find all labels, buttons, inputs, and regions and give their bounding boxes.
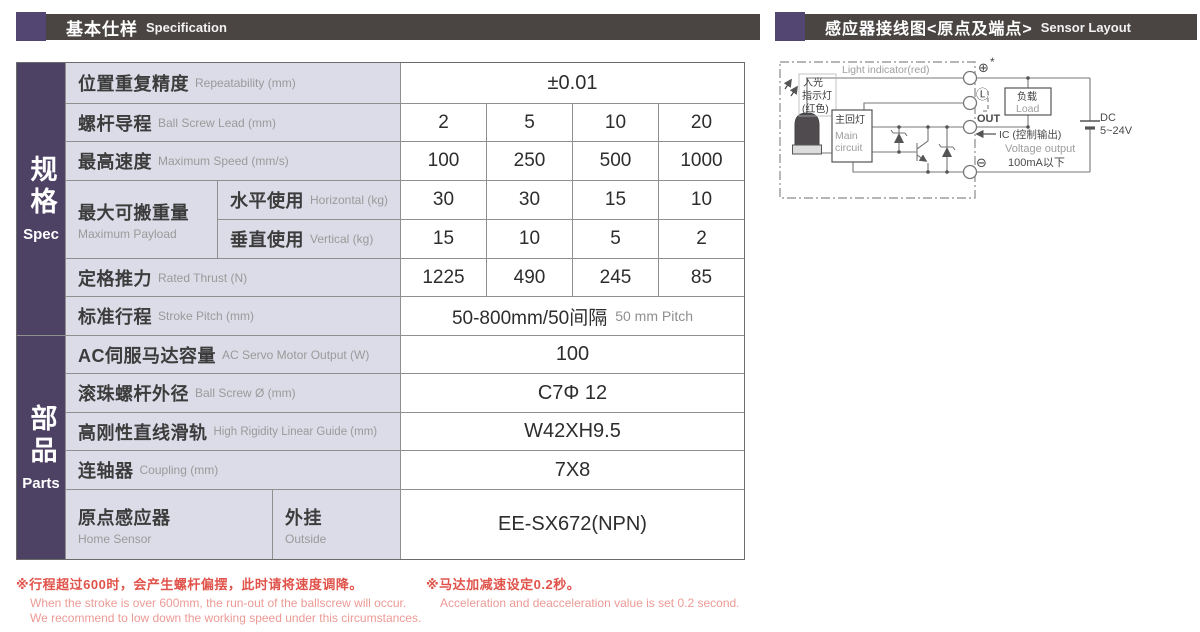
value-cells: 30 30 15 10 xyxy=(401,181,744,219)
row-label-en: Horizontal (kg) xyxy=(310,193,388,207)
section-label-parts: 部品 Parts xyxy=(17,336,65,559)
section-column: 规格 Spec 部品 Parts xyxy=(17,63,66,559)
stroke-pitch-value-zh: 50-800mm/50间隔 xyxy=(452,303,607,330)
footnote-accel: ※马达加减速设定0.2秒。 Acceleration and deacceler… xyxy=(426,574,740,610)
row-label-mount: 外挂 Outside xyxy=(273,490,401,559)
row-label-zh: 螺杆导程 xyxy=(78,110,152,136)
row-label-zh: 标准行程 xyxy=(78,303,152,329)
row-label-en: Outside xyxy=(285,532,326,546)
terminal-minus-circle xyxy=(964,166,977,179)
row-label-en: Coupling (mm) xyxy=(140,463,219,477)
value-cell: 1000 xyxy=(659,142,744,180)
table-row-max-payload: 最大可搬重量 Maximum Payload 水平使用 Horizontal (… xyxy=(66,181,744,259)
table-row-stroke-pitch: 标准行程 Stroke Pitch (mm) 50-800mm/50间隔 50 … xyxy=(66,297,744,336)
load-box: 负载 Load xyxy=(1005,88,1051,115)
row-label: 标准行程 Stroke Pitch (mm) xyxy=(66,297,401,335)
main-circuit-en2: circuit xyxy=(835,142,863,154)
load-label-en: Load xyxy=(1016,103,1040,115)
footnote-stroke-zh: ※行程超过600时，会产生螺杆偏摆，此时请将速度调降。 xyxy=(16,574,421,593)
value-cell: ±0.01 xyxy=(401,63,744,103)
footnote-stroke-en1: When the stroke is over 600mm, the run-o… xyxy=(30,596,421,610)
row-label-zh: 高刚性直线滑轨 xyxy=(78,419,208,445)
value-cell: 10 xyxy=(487,220,573,258)
row-label: 原点感应器 Home Sensor xyxy=(66,490,273,559)
value-cell: 85 xyxy=(659,259,744,296)
spec-sheet-page: { "header_left": { "title_zh": "基本仕样", "… xyxy=(0,0,1200,632)
sensor-wiring-diagram: 入光 指示灯 (红色) Light indicator(red) 主回灯 Mai… xyxy=(778,55,1198,205)
section-parts-zh: 部品 xyxy=(28,404,55,468)
led-label-red: (红色) xyxy=(802,102,829,115)
sensor-header-title-zh: 感应器接线图<原点及端点> xyxy=(825,15,1033,39)
row-label-en: Maximum Speed (mm/s) xyxy=(158,154,289,168)
led-label-light-in: 入光 xyxy=(803,76,823,89)
light-indicator-label-en: Light indicator(red) xyxy=(842,64,930,76)
row-label-zh: 定格推力 xyxy=(78,265,152,291)
row-label: AC伺服马达容量 AC Servo Motor Output (W) xyxy=(66,336,401,373)
row-label-payload: 最大可搬重量 Maximum Payload xyxy=(66,181,218,258)
value-cell: W42XH9.5 xyxy=(401,413,744,450)
row-label-zh: 连轴器 xyxy=(78,457,134,483)
row-label-en: Stroke Pitch (mm) xyxy=(158,309,254,323)
row-label: 高刚性直线滑轨 High Rigidity Linear Guide (mm) xyxy=(66,413,401,450)
value-cell: 5 xyxy=(573,220,659,258)
dc-range-label: 5~24V xyxy=(1100,125,1133,137)
current-limit-label: 100mA以下 xyxy=(1008,157,1065,169)
value-cell: 245 xyxy=(573,259,659,296)
row-label-en: Ball Screw Lead (mm) xyxy=(158,116,276,130)
row-label-zh: 外挂 xyxy=(285,504,322,530)
value-cell: 30 xyxy=(487,181,573,219)
row-label: 最高速度 Maximum Speed (mm/s) xyxy=(66,142,401,180)
spec-header-bar: 基本仕样 Specification xyxy=(38,14,760,40)
row-label-zh: 最大可搬重量 xyxy=(78,199,189,225)
purple-accent-square xyxy=(775,12,805,41)
purple-accent-square xyxy=(16,12,46,41)
terminal-plus-circle xyxy=(964,72,977,85)
footnote-accel-zh: ※马达加减速设定0.2秒。 xyxy=(426,574,740,593)
specification-table: 规格 Spec 部品 Parts 位置重复精度 Repeatability (m… xyxy=(16,62,745,560)
table-row-ball-screw-dia: 滚珠螺杆外径 Ball Screw Ø (mm) C7Φ 12 xyxy=(66,374,744,413)
table-row-linear-guide: 高刚性直线滑轨 High Rigidity Linear Guide (mm) … xyxy=(66,413,744,451)
spec-header-title-zh: 基本仕样 xyxy=(66,15,138,40)
transistor-symbol xyxy=(917,127,928,172)
value-cell: C7Φ 12 xyxy=(401,374,744,412)
row-label: 水平使用 Horizontal (kg) xyxy=(218,181,401,219)
value-cell: 20 xyxy=(659,104,744,141)
value-cells: 1225 490 245 85 xyxy=(401,259,744,296)
dc-label: DC xyxy=(1100,112,1116,124)
battery-symbol xyxy=(1080,121,1100,128)
value-cell: 15 xyxy=(573,181,659,219)
payload-horizontal-row: 水平使用 Horizontal (kg) 30 30 15 10 xyxy=(218,181,744,220)
row-label-en: Vertical (kg) xyxy=(310,232,373,246)
terminal-plus-label: ⊕ xyxy=(978,60,989,75)
terminal-out-label: OUT xyxy=(977,113,1001,125)
table-row-rated-thrust: 定格推力 Rated Thrust (N) 1225 490 245 85 xyxy=(66,259,744,297)
row-label: 垂直使用 Vertical (kg) xyxy=(218,220,401,258)
value-cells: 100 250 500 1000 xyxy=(401,142,744,180)
voltage-output-label: Voltage output xyxy=(1005,143,1075,155)
row-label: 位置重复精度 Repeatability (mm) xyxy=(66,63,401,103)
value-cell: EE-SX672(NPN) xyxy=(401,490,744,559)
table-row-ball-screw-lead: 螺杆导程 Ball Screw Lead (mm) 2 5 10 20 xyxy=(66,104,744,142)
value-cell: 5 xyxy=(487,104,573,141)
row-label-zh: 位置重复精度 xyxy=(78,70,189,96)
row-label-en: Home Sensor xyxy=(78,532,151,546)
row-label-zh: AC伺服马达容量 xyxy=(78,342,216,368)
sensor-header-bar: 感应器接线图<原点及端点> Sensor Layout xyxy=(797,14,1197,40)
row-label: 螺杆导程 Ball Screw Lead (mm) xyxy=(66,104,401,141)
main-circuit-en1: Main xyxy=(835,130,858,142)
main-circuit-box: 主回灯 Main circuit xyxy=(832,110,872,162)
terminal-star-label: * xyxy=(990,55,995,69)
value-cell: 250 xyxy=(487,142,573,180)
value-cell: 15 xyxy=(401,220,487,258)
table-row-servo-output: AC伺服马达容量 AC Servo Motor Output (W) 100 xyxy=(66,336,744,374)
terminal-l-circle xyxy=(964,97,977,110)
value-cell: 10 xyxy=(659,181,744,219)
row-label-en: Rated Thrust (N) xyxy=(158,271,247,285)
value-cell: 100 xyxy=(401,336,744,373)
section-parts-en: Parts xyxy=(22,475,60,492)
row-label-en: Ball Screw Ø (mm) xyxy=(195,386,296,400)
value-cell: 500 xyxy=(573,142,659,180)
row-label-en: Maximum Payload xyxy=(78,227,177,241)
row-label-en: AC Servo Motor Output (W) xyxy=(222,348,369,362)
value-cells: 15 10 5 2 xyxy=(401,220,744,258)
sensor-header-title-en: Sensor Layout xyxy=(1041,20,1131,35)
table-rows: 位置重复精度 Repeatability (mm) ±0.01 螺杆导程 Bal… xyxy=(66,63,744,559)
section-spec-zh: 规格 xyxy=(28,155,55,219)
load-label-zh: 负载 xyxy=(1017,90,1037,103)
footnote-stroke: ※行程超过600时，会产生螺杆偏摆，此时请将速度调降。 When the str… xyxy=(16,574,421,625)
row-label-en: Repeatability (mm) xyxy=(195,76,296,90)
row-label-zh: 滚珠螺杆外径 xyxy=(78,380,189,406)
value-cell: 490 xyxy=(487,259,573,296)
row-label-zh: 最高速度 xyxy=(78,148,152,174)
spec-section-header: 基本仕样 Specification xyxy=(16,12,760,42)
terminal-out-circle xyxy=(964,121,977,134)
terminal-minus-label: ⊖ xyxy=(976,155,987,170)
value-cell: 2 xyxy=(401,104,487,141)
terminal-l-label: Ⓛ xyxy=(976,87,989,102)
payload-subrows: 水平使用 Horizontal (kg) 30 30 15 10 垂直使用 Ve… xyxy=(218,181,744,258)
value-cell: 7X8 xyxy=(401,451,744,489)
row-label: 定格推力 Rated Thrust (N) xyxy=(66,259,401,296)
value-cell: 100 xyxy=(401,142,487,180)
footnote-stroke-en2: We recommend to low down the working spe… xyxy=(30,611,421,625)
stroke-pitch-value-en: 50 mm Pitch xyxy=(615,308,693,324)
ic-output-label: IC (控制输出) xyxy=(999,128,1061,141)
value-cell: 30 xyxy=(401,181,487,219)
sensor-layout-header: 感应器接线图<原点及端点> Sensor Layout xyxy=(775,12,1197,42)
row-label: 滚珠螺杆外径 Ball Screw Ø (mm) xyxy=(66,374,401,412)
row-label: 连轴器 Coupling (mm) xyxy=(66,451,401,489)
section-label-spec: 规格 Spec xyxy=(17,63,65,336)
row-label-zh: 水平使用 xyxy=(230,187,304,213)
value-cell: 2 xyxy=(659,220,744,258)
row-label-zh: 垂直使用 xyxy=(230,226,304,252)
value-cell: 1225 xyxy=(401,259,487,296)
row-label-zh: 原点感应器 xyxy=(78,504,171,530)
spec-header-title-en: Specification xyxy=(146,20,227,35)
value-cell: 50-800mm/50间隔 50 mm Pitch xyxy=(401,297,744,335)
value-cells: 2 5 10 20 xyxy=(401,104,744,141)
payload-vertical-row: 垂直使用 Vertical (kg) 15 10 5 2 xyxy=(218,220,744,258)
main-circuit-zh: 主回灯 xyxy=(835,114,865,126)
footnote-accel-en: Acceleration and deacceleration value is… xyxy=(440,596,740,610)
table-row-max-speed: 最高速度 Maximum Speed (mm/s) 100 250 500 10… xyxy=(66,142,744,181)
led-label-indicator: 指示灯 xyxy=(802,89,832,102)
row-label-en: High Rigidity Linear Guide (mm) xyxy=(214,426,378,438)
table-row-home-sensor: 原点感应器 Home Sensor 外挂 Outside EE-SX672(NP… xyxy=(66,490,744,559)
table-row-coupling: 连轴器 Coupling (mm) 7X8 xyxy=(66,451,744,490)
section-spec-en: Spec xyxy=(23,226,59,243)
table-row-repeatability: 位置重复精度 Repeatability (mm) ±0.01 xyxy=(66,63,744,104)
value-cell: 10 xyxy=(573,104,659,141)
